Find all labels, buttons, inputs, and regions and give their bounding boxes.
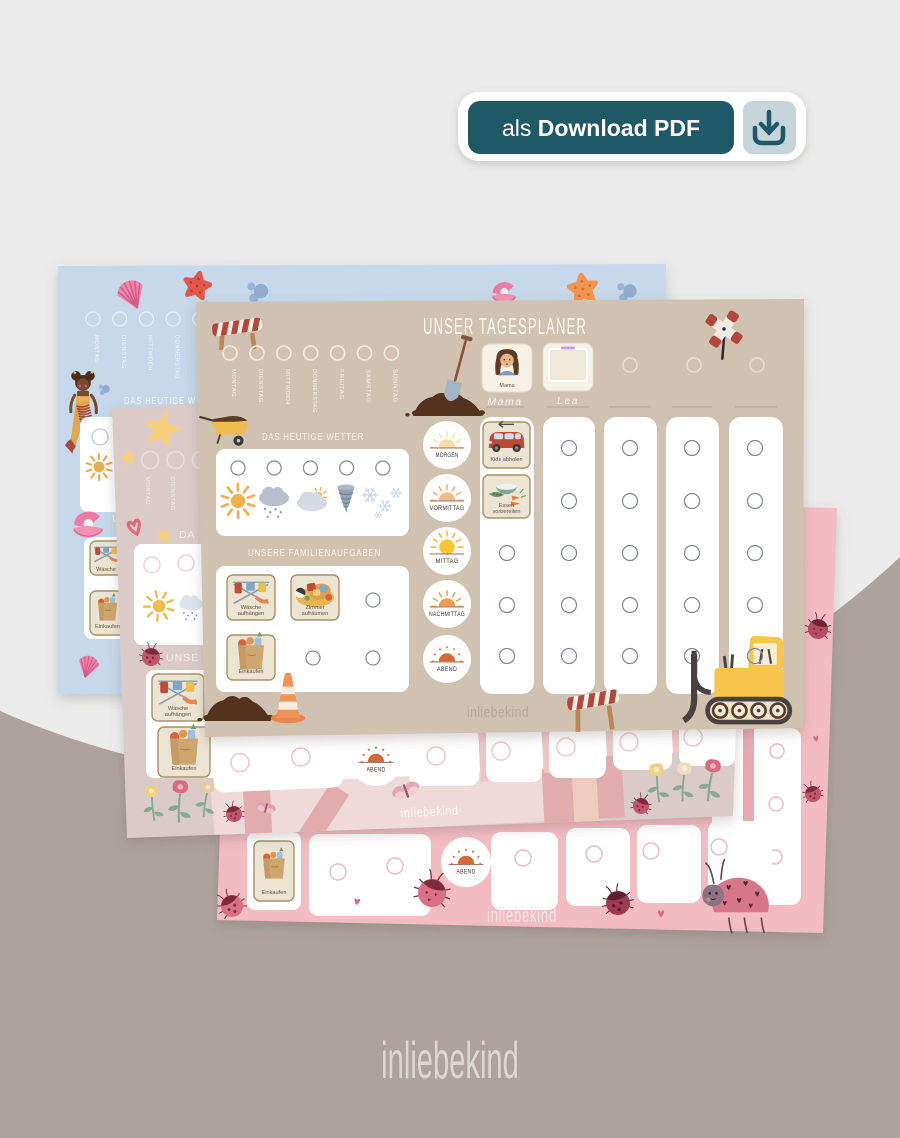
- svg-text:DONNERSTAG: DONNERSTAG: [311, 369, 317, 413]
- svg-text:inliebekind: inliebekind: [467, 704, 529, 721]
- svg-text:DIENSTAG: DIENSTAG: [169, 477, 175, 511]
- svg-text:MONTAG: MONTAG: [93, 335, 99, 363]
- svg-text:MITTAG: MITTAG: [436, 558, 459, 565]
- svg-text:Wäsche: Wäsche: [96, 567, 115, 573]
- svg-text:inliebekind: inliebekind: [400, 802, 459, 820]
- svg-text:MITTWOCH: MITTWOCH: [147, 335, 153, 371]
- svg-text:ABEND: ABEND: [437, 666, 457, 673]
- svg-text:MORGEN: MORGEN: [436, 452, 459, 459]
- svg-text:FREITAG: FREITAG: [338, 369, 344, 400]
- svg-text:Lea: Lea: [557, 395, 579, 407]
- svg-text:DAS HEUTIGE WETTER: DAS HEUTIGE WETTER: [262, 431, 364, 443]
- svg-text:Mama: Mama: [499, 383, 515, 389]
- svg-text:Mama: Mama: [487, 396, 522, 408]
- svg-text:DONNERSTAG: DONNERSTAG: [173, 335, 179, 379]
- svg-text:VORMITTAG: VORMITTAG: [430, 505, 465, 512]
- svg-text:als Download PDF: als Download PDF: [502, 115, 700, 141]
- svg-text:MONTAG: MONTAG: [144, 477, 150, 505]
- svg-text:aufhängen: aufhängen: [238, 611, 264, 617]
- svg-text:Kids abholen: Kids abholen: [490, 457, 522, 463]
- svg-text:Einkaufen: Einkaufen: [172, 766, 197, 772]
- svg-text:SONNTAG: SONNTAG: [392, 369, 398, 403]
- svg-text:Einkaufen: Einkaufen: [262, 890, 287, 896]
- svg-text:NACHMITTAG: NACHMITTAG: [429, 611, 465, 618]
- svg-text:DA: DA: [179, 529, 196, 541]
- svg-text:Einkaufen: Einkaufen: [95, 624, 120, 630]
- svg-text:DIENSTAG: DIENSTAG: [120, 335, 126, 369]
- svg-text:DIENSTAG: DIENSTAG: [257, 369, 263, 403]
- svg-text:vorbereiten: vorbereiten: [493, 509, 521, 515]
- svg-text:Einkaufen: Einkaufen: [239, 669, 264, 675]
- svg-text:inliebekind: inliebekind: [381, 1032, 519, 1090]
- svg-text:ABEND: ABEND: [367, 767, 386, 774]
- svg-text:aufräumen: aufräumen: [302, 611, 329, 617]
- svg-text:SAMSTAG: SAMSTAG: [365, 369, 371, 403]
- svg-text:UNSER TAGESPLANER: UNSER TAGESPLANER: [423, 313, 587, 339]
- svg-text:UNSE: UNSE: [166, 652, 199, 664]
- svg-text:UNSERE FAMILIENAUFGABEN: UNSERE FAMILIENAUFGABEN: [248, 547, 381, 559]
- svg-text:MITTWOCH: MITTWOCH: [284, 369, 290, 405]
- svg-text:MONTAG: MONTAG: [230, 369, 236, 397]
- svg-text:inliebekind: inliebekind: [487, 905, 557, 927]
- svg-text:ABEND: ABEND: [457, 869, 476, 876]
- svg-text:aufhängen: aufhängen: [165, 712, 191, 718]
